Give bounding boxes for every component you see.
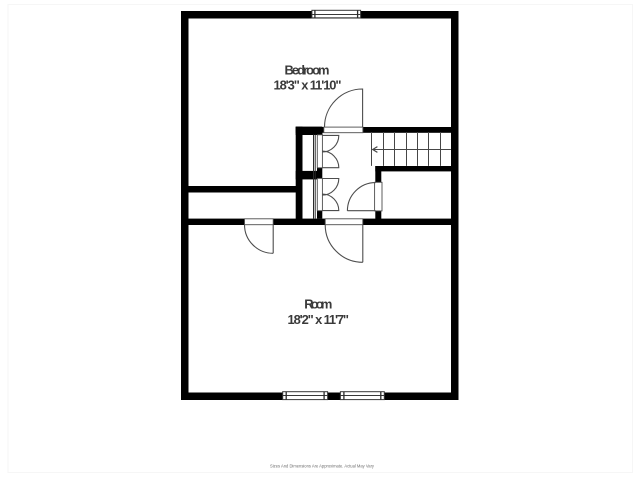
svg-text:Bedroom: Bedroom bbox=[285, 63, 330, 78]
svg-text:18'3" x 11'10": 18'3" x 11'10" bbox=[274, 78, 342, 93]
svg-text:Sizes And Dimensions Are Appro: Sizes And Dimensions Are Approximate. Ac… bbox=[270, 464, 375, 469]
svg-text:Room: Room bbox=[304, 296, 332, 311]
svg-text:18'2" x 11'7": 18'2" x 11'7" bbox=[288, 312, 350, 327]
